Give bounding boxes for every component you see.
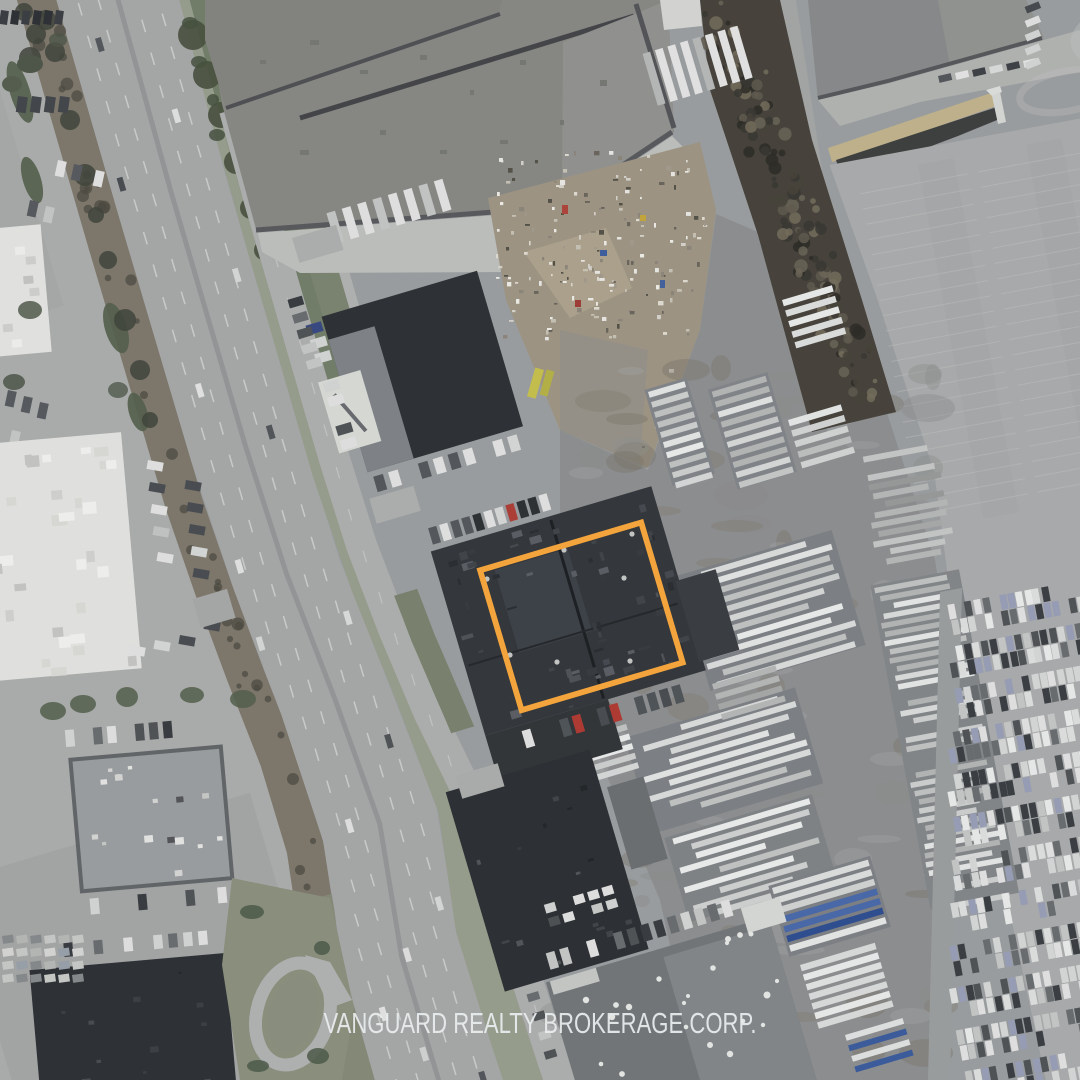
svg-text:VANGUARD REALTY BROKERAGE CORP: VANGUARD REALTY BROKERAGE CORP. bbox=[324, 1008, 757, 1040]
